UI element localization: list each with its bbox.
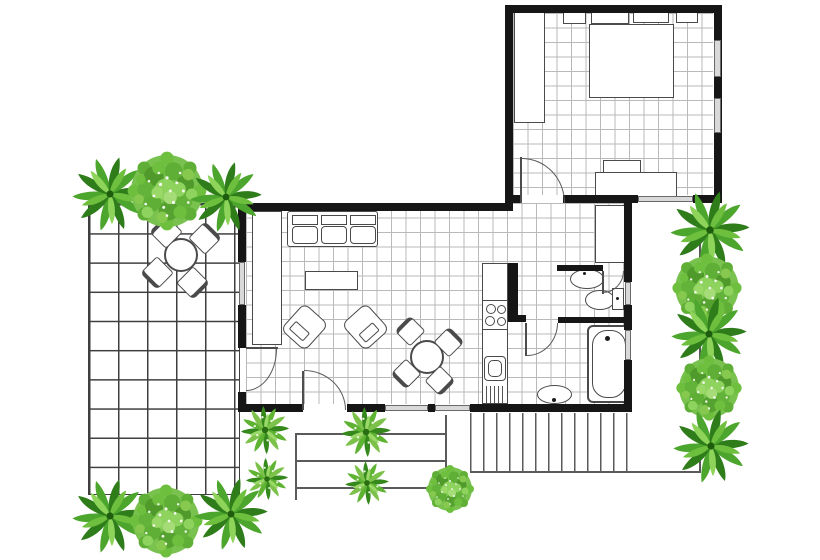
stove-burner xyxy=(486,304,496,314)
bathroom-window xyxy=(625,282,631,305)
living-wall-right xyxy=(624,360,632,412)
living-wall-left xyxy=(238,203,246,262)
toilet-flush-dot xyxy=(616,297,619,300)
bathtub-drain xyxy=(605,336,610,341)
sofa xyxy=(287,211,378,247)
sofa-seat-cushion xyxy=(321,226,347,244)
pedestal-sink-drain xyxy=(552,398,556,402)
floor-plan xyxy=(0,0,820,560)
garden-fence-line xyxy=(699,205,701,473)
living-window-bottom xyxy=(435,405,470,411)
bedroom-window xyxy=(638,196,693,202)
deck-edge-line xyxy=(470,471,701,473)
step-line xyxy=(295,433,446,435)
tree-plant xyxy=(671,252,743,324)
double-bed xyxy=(589,24,674,98)
sofa-seat-cushion xyxy=(350,226,376,244)
step-line xyxy=(295,487,446,489)
kitchen-sink-basin xyxy=(488,360,502,377)
kitchen-divider-stub xyxy=(508,315,526,322)
stove-burner xyxy=(497,305,506,314)
wardrobe xyxy=(514,11,545,123)
kitchen-divider-wall xyxy=(508,263,518,322)
wood-deck xyxy=(470,413,637,472)
appliance-vent xyxy=(486,386,504,403)
toilet-bowl xyxy=(585,290,615,310)
sofa-back-cushion xyxy=(321,215,347,225)
living-wall-bottom xyxy=(428,404,435,412)
tree-plant xyxy=(675,354,743,422)
tree-plant xyxy=(425,464,475,514)
sofa-back-cushion xyxy=(350,215,376,225)
stove xyxy=(482,300,508,330)
living-wall-right xyxy=(624,203,632,282)
shrub-plant xyxy=(239,451,295,507)
palm-plant xyxy=(669,294,749,374)
living-wall-bottom xyxy=(470,404,632,412)
step-rail-right xyxy=(445,415,447,500)
sofa-seat-cushion xyxy=(292,226,318,244)
wash-basin xyxy=(570,269,604,289)
sofa-back-cushion xyxy=(292,215,318,225)
palm-plant xyxy=(671,406,751,486)
living-wall-bottom xyxy=(347,404,385,412)
wall-unit xyxy=(252,211,282,345)
living-window-left xyxy=(239,262,245,305)
kitchen-counter xyxy=(482,263,508,404)
living-wall-left xyxy=(238,305,246,348)
bedroom-window xyxy=(714,98,721,133)
bedroom-wall-bottom xyxy=(563,195,638,203)
step-line xyxy=(295,460,446,462)
armchair-cushion xyxy=(289,321,310,342)
step-rail-left xyxy=(295,433,297,500)
kitchen-sink xyxy=(484,356,506,381)
hall-closet xyxy=(595,205,625,263)
bedroom-wall-bottom xyxy=(693,195,722,203)
living-wall-bottom xyxy=(238,404,303,412)
bathroom-wall-mid xyxy=(558,317,632,323)
coffee-table xyxy=(305,271,358,290)
living-wall-top xyxy=(238,203,513,211)
shrub-plant xyxy=(338,454,396,512)
stove-burner xyxy=(485,316,495,326)
stove-burner xyxy=(497,317,506,326)
bedroom-wall-top xyxy=(505,5,722,13)
armchair-cushion xyxy=(358,322,379,343)
bathroom-wall-top xyxy=(557,265,603,271)
bathroom-window xyxy=(625,330,631,360)
living-window-bottom xyxy=(385,405,428,411)
bedroom-wall-left xyxy=(505,5,513,211)
wash-basin-tap xyxy=(583,272,586,275)
bedroom-window xyxy=(714,40,721,77)
